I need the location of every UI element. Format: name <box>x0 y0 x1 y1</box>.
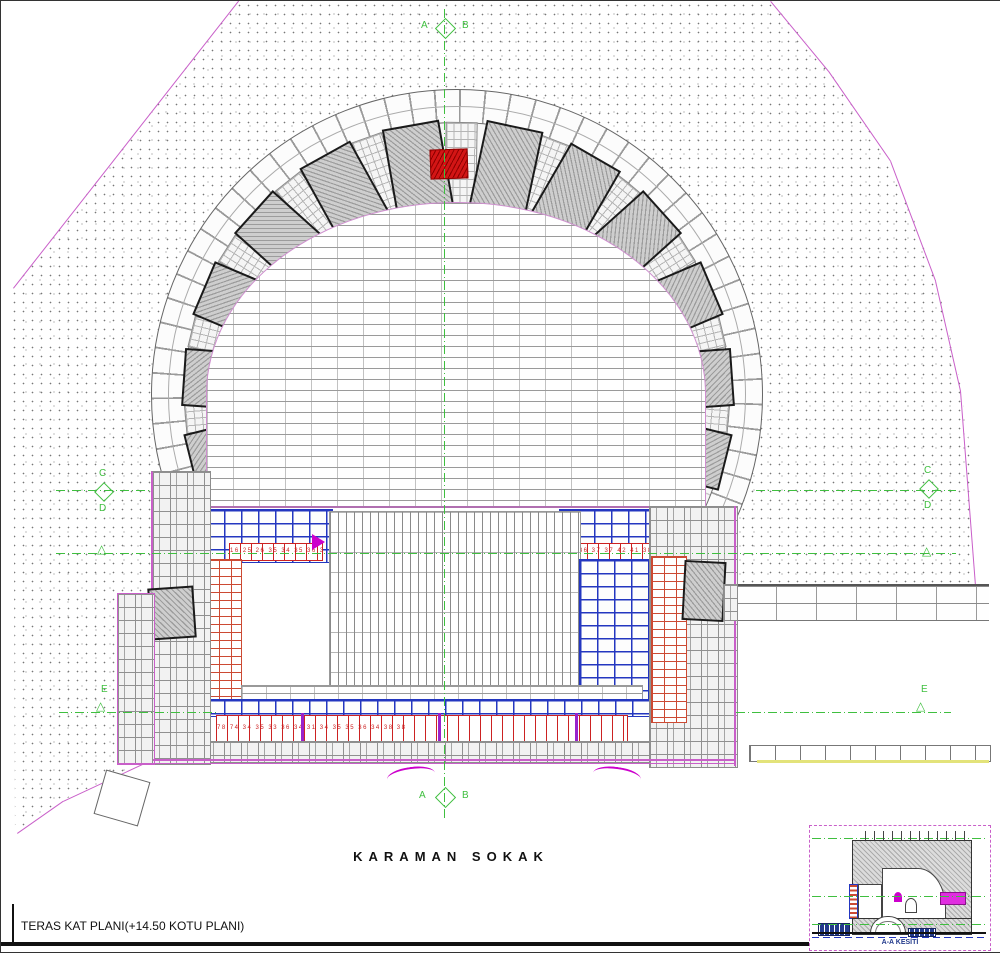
right-wall-red-brick <box>651 556 687 723</box>
section-inset: A-A KESİTİ <box>809 825 991 951</box>
title-block-divider <box>1 942 813 946</box>
numbered-stone-row-left: 16 25 26 35 34 35 36 35 36 32 35 <box>229 543 323 561</box>
direction-arrow-right <box>312 534 325 550</box>
drawing-title: TERAS KAT PLANI(+14.50 KOTU PLANI) <box>21 919 244 933</box>
axis-marker-d-right: D <box>924 501 931 511</box>
axis-marker-triangle: △ <box>916 700 925 712</box>
left-annex-wall <box>117 593 155 765</box>
section-marker-b-bottom: B <box>462 791 469 801</box>
leader-arc <box>386 764 436 789</box>
section-marker-diamond <box>435 787 456 808</box>
section-marker-a-top: A <box>421 21 428 31</box>
terrace-red-brick-column <box>206 559 242 716</box>
purple-tick <box>438 713 441 741</box>
inset-room-small <box>858 884 882 919</box>
axis-marker-c-right: C <box>924 466 931 476</box>
inset-level-line <box>812 896 986 897</box>
inset-niche <box>905 898 917 913</box>
red-repair-patch <box>429 148 468 179</box>
wall-buttress-block <box>681 560 726 622</box>
purple-tick <box>301 713 304 741</box>
numbered-parapet-row: 78 74 34 35 33 36 34 31 34 35 35 36 34 3… <box>216 715 628 743</box>
paving-band <box>736 584 989 621</box>
section-marker-b-top: B <box>462 21 469 31</box>
terrace-vertical-brick-field <box>329 511 581 693</box>
inset-stair-stack <box>849 884 858 919</box>
inset-magenta-beam <box>940 892 966 905</box>
terrace-stone-column <box>579 559 651 706</box>
axis-centerline-vertical <box>444 9 445 819</box>
title-block-edge <box>12 904 14 944</box>
axis-marker-c-left: C <box>99 469 106 479</box>
axis-marker-d-left: D <box>99 504 106 514</box>
axis-marker-e-left: E <box>101 685 108 695</box>
leader-arc <box>592 764 642 789</box>
yellow-curb-line <box>757 760 989 763</box>
axis-line-e <box>59 712 219 713</box>
section-marker-a-bottom: A <box>419 791 426 801</box>
axis-marker-e-right: E <box>921 685 928 695</box>
purple-tick <box>575 713 578 741</box>
terrace-bottom-boundary <box>117 763 736 764</box>
axis-marker-triangle: △ <box>97 543 106 555</box>
inset-level-line <box>812 924 986 925</box>
terrace-top-line <box>206 506 706 508</box>
inset-ground-line <box>812 932 986 934</box>
axis-marker-triangle: △ <box>922 545 931 557</box>
axis-marker-triangle: △ <box>96 700 105 712</box>
street-name: KARAMAN SOKAK <box>321 849 581 864</box>
paving-band-cap <box>723 584 738 621</box>
inset-label: A-A KESİTİ <box>855 939 945 946</box>
drawing-sheet: 16 25 26 35 34 35 36 35 36 32 35 34 36 3… <box>0 0 1000 953</box>
axis-line-mid <box>56 553 956 554</box>
right-wall-boundary <box>734 506 736 766</box>
